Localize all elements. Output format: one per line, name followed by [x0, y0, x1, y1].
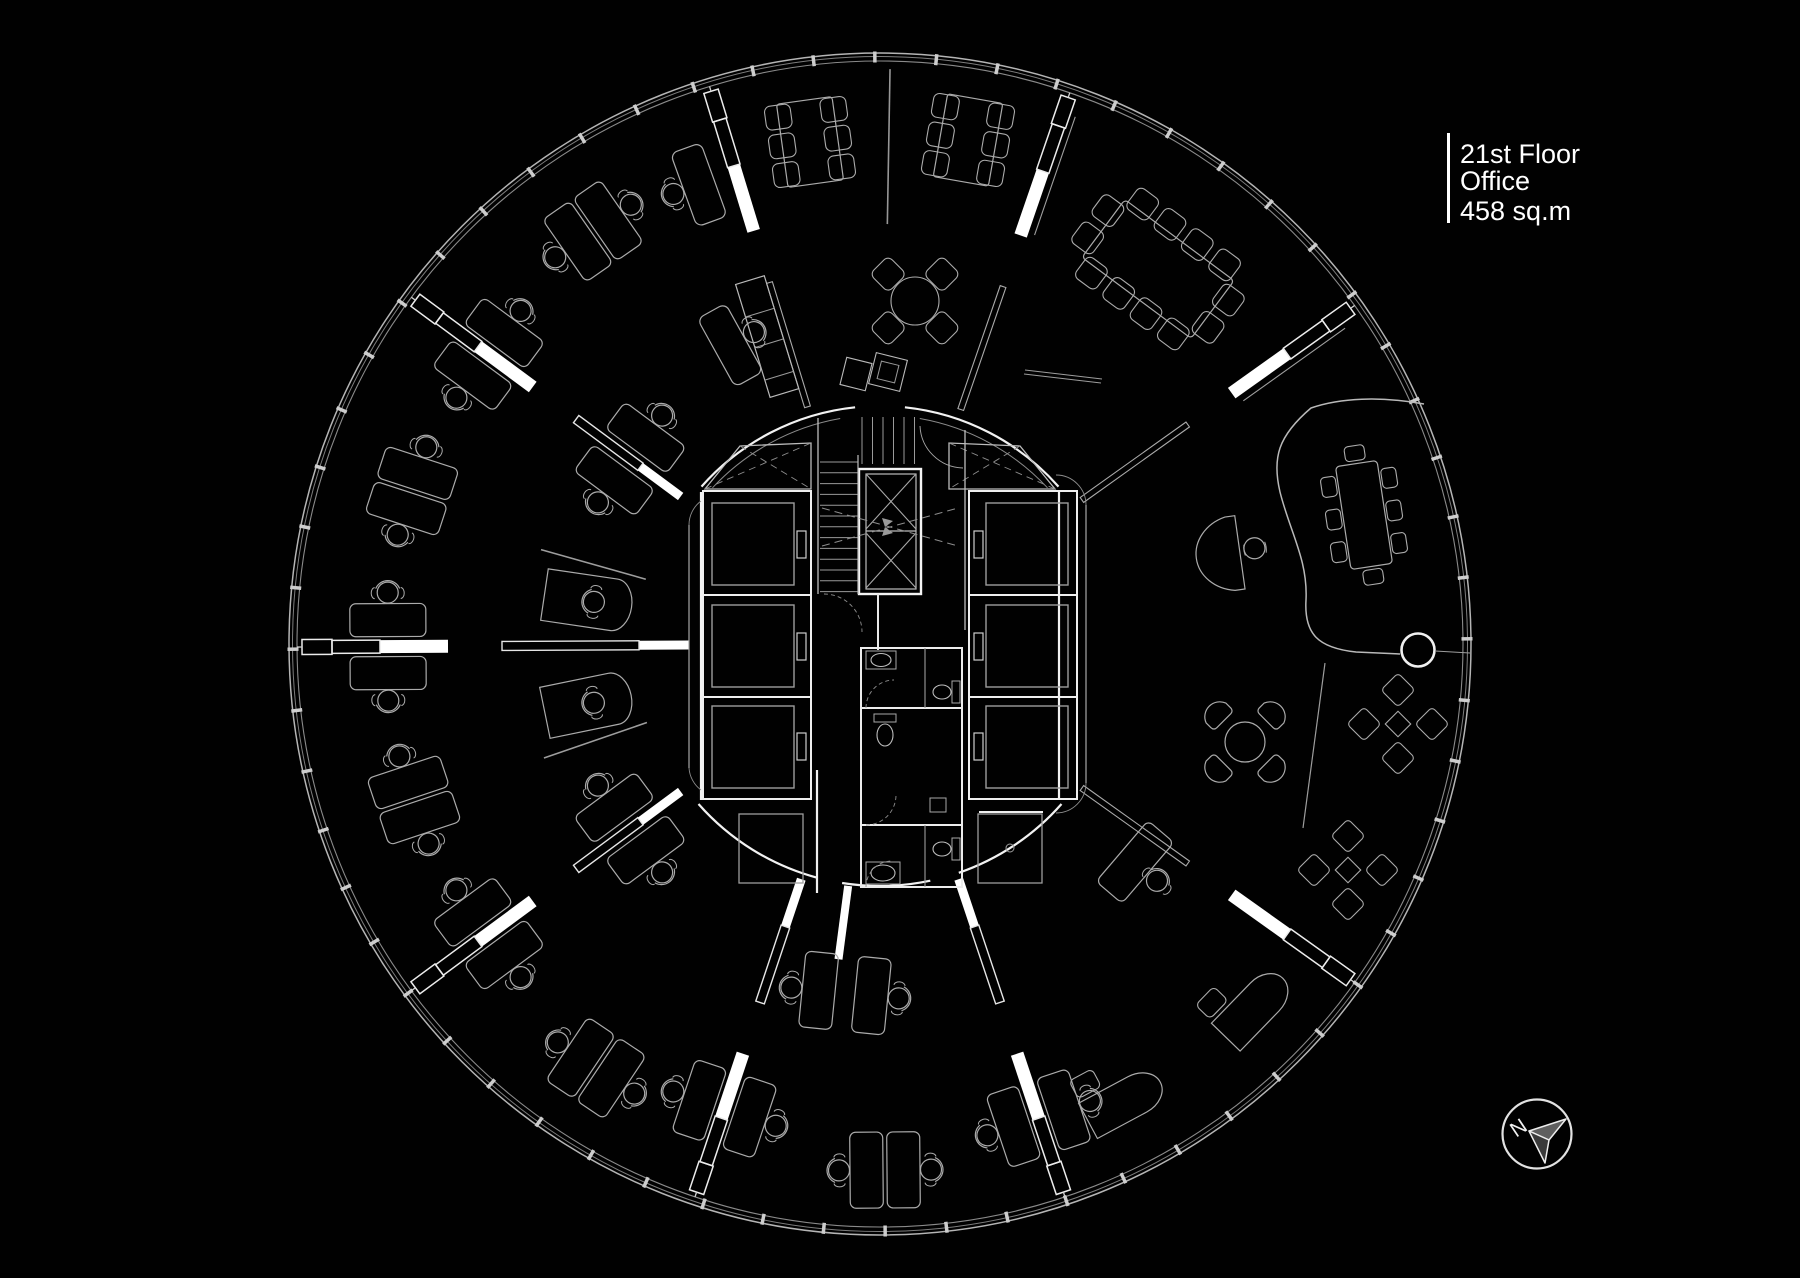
svg-text:458 sq.m: 458 sq.m	[1460, 196, 1571, 226]
svg-text:Office: Office	[1460, 166, 1530, 196]
svg-text:21st Floor: 21st Floor	[1460, 139, 1580, 169]
